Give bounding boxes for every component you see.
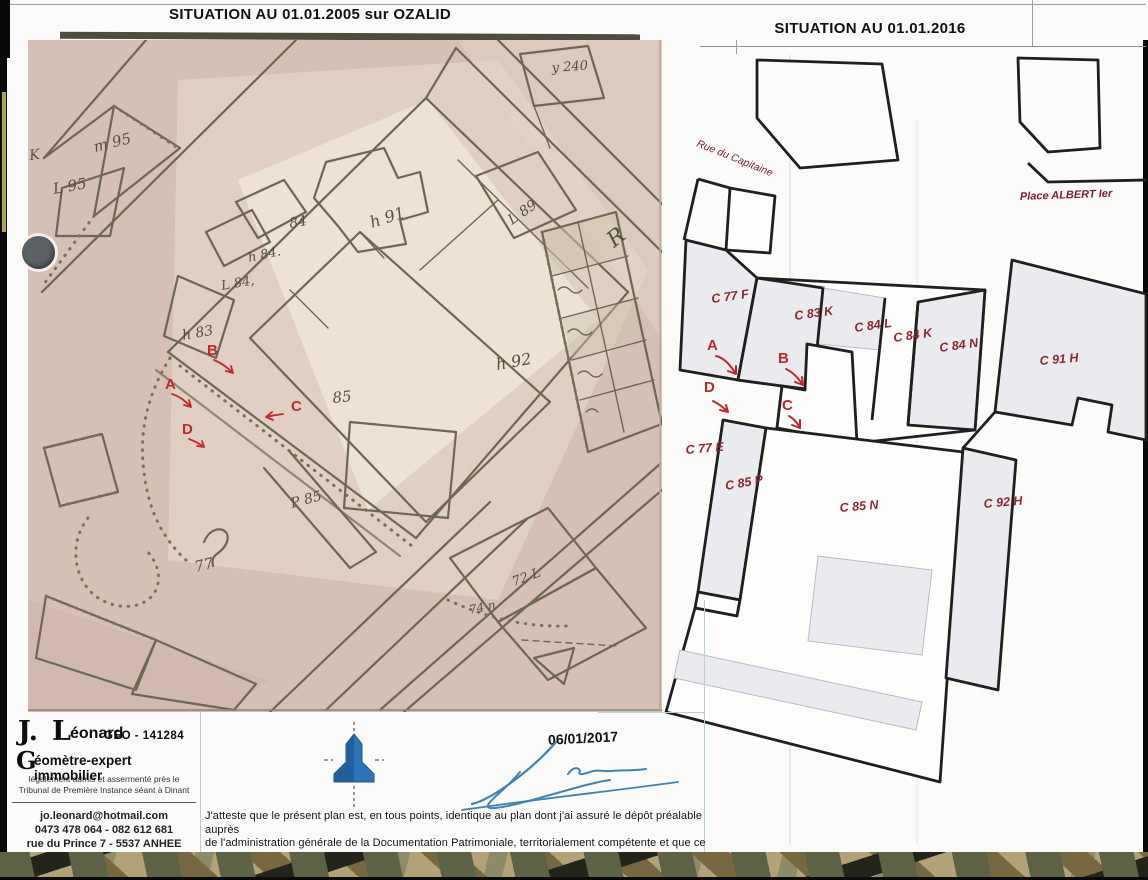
footer-fold-line-h xyxy=(598,712,704,713)
corner-scan-edge xyxy=(0,0,10,58)
punch-hole xyxy=(22,236,55,269)
surveyor-profession: éomètre-expert immobilier xyxy=(34,753,198,783)
logo-letter-j: J. xyxy=(18,716,38,747)
right-title-tick xyxy=(1032,0,1033,46)
blocks-north xyxy=(757,58,1146,182)
marker-d: D xyxy=(704,379,715,396)
accreditation-line-2: Tribunal de Première Instance séant à Di… xyxy=(10,785,198,796)
left-map-ozalid-2005: K m 95 L 95 y 240 84 h 84. L 84, h 83 h … xyxy=(28,40,662,712)
scanned-plan-document: SITUATION AU 01.01.2005 sur OZALID SITUA… xyxy=(0,0,1148,880)
logo-letter-l: L xyxy=(52,716,71,747)
right-title-underline xyxy=(700,46,1146,47)
footer-divider xyxy=(200,712,201,852)
parcel-north-small xyxy=(726,188,775,253)
marker-b: B xyxy=(778,350,789,367)
parcel-c91h-shape xyxy=(995,260,1146,440)
scan-sliver xyxy=(2,92,6,232)
street-rue-du-capitaine: Rue du Capitaine xyxy=(695,138,775,180)
street-place-albert: Place ALBERT Ier xyxy=(1020,188,1113,203)
surveyor-phone: 0473 478 064 - 082 612 681 xyxy=(10,823,198,837)
old-label-85: 85 xyxy=(332,387,353,407)
old-marker-c: C xyxy=(291,398,302,415)
marker-c: C xyxy=(782,397,793,414)
c85n-building-1 xyxy=(808,556,932,655)
camouflage-background xyxy=(0,852,1148,877)
marker-a: A xyxy=(707,337,718,354)
citadel-logo xyxy=(324,722,384,808)
letterhead-rule xyxy=(12,802,196,803)
parcel-label-c92h: C 92 H xyxy=(983,494,1024,511)
attestation-line-1: J'atteste que le présent plan est, en to… xyxy=(205,810,721,837)
surveyor-email: jo.leonard@hotmail.com xyxy=(10,809,198,823)
right-map-2016: Rue du Capitaine Place ALBERT Ier C 77 F… xyxy=(662,50,1148,852)
left-map-title: SITUATION AU 01.01.2005 sur OZALID xyxy=(120,6,500,23)
parcel-c84n-shape xyxy=(908,290,985,430)
old-marker-b: B xyxy=(207,342,218,359)
surveyor-address: rue du Prince 7 - 5537 ANHEE xyxy=(10,837,198,851)
right-map-title: SITUATION AU 01.01.2016 xyxy=(740,20,1000,37)
old-marker-d: D xyxy=(182,421,193,438)
marker-d-arrow xyxy=(713,401,728,412)
old-label-84: 84 xyxy=(288,213,308,232)
geo-reference: GEO - 141284 xyxy=(104,730,184,742)
top-scan-line xyxy=(8,4,1146,5)
parcels-south xyxy=(666,420,1016,782)
signature xyxy=(460,738,682,812)
old-marker-a: A xyxy=(165,376,176,393)
citadel-logo-shadow xyxy=(334,734,354,782)
old-label-y240: y 240 xyxy=(550,58,588,76)
